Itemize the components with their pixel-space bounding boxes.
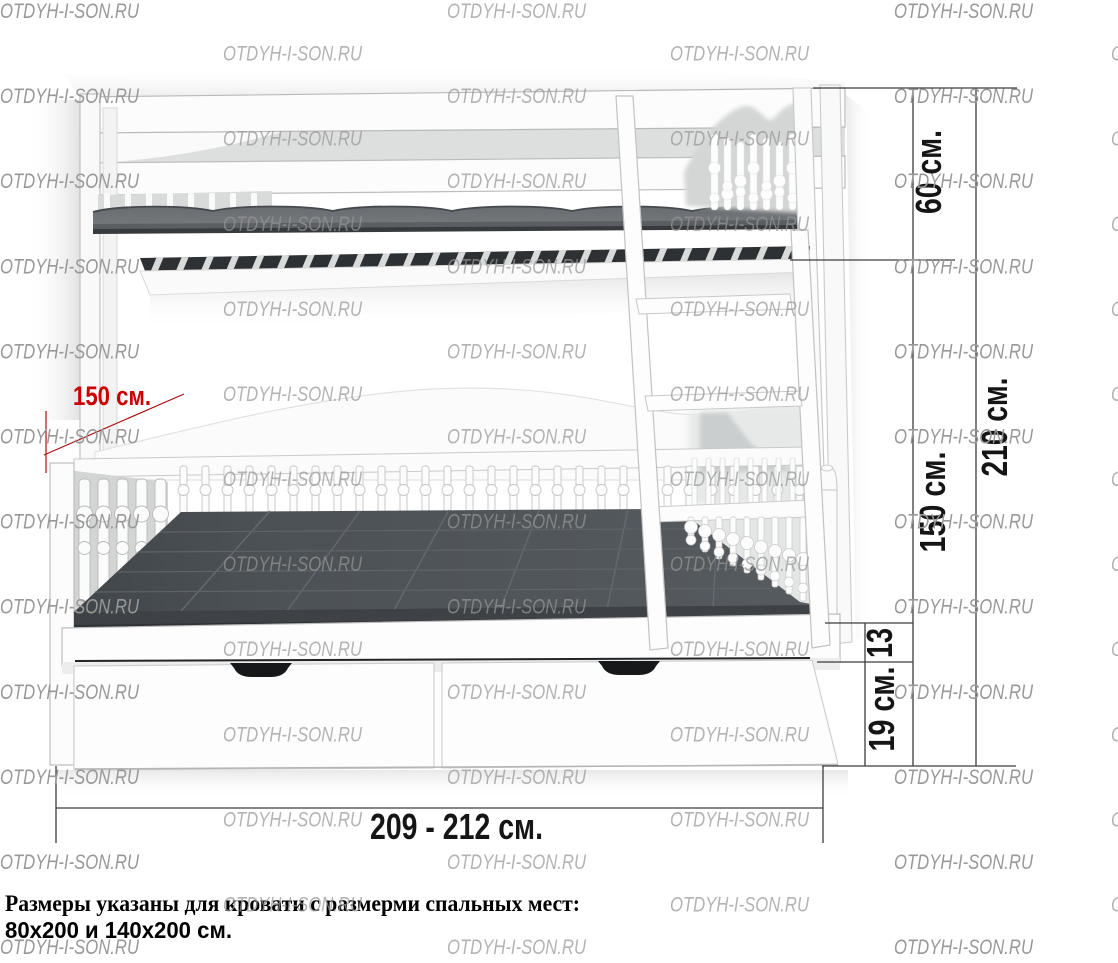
svg-text:OTDYH-I-SON.RU: OTDYH-I-SON.RU bbox=[670, 808, 810, 831]
svg-text:OTDYH-I-SON.RU: OTDYH-I-SON.RU bbox=[894, 511, 1034, 534]
svg-text:OTDYH-I-SON.RU: OTDYH-I-SON.RU bbox=[670, 383, 810, 406]
svg-text:OTDYH-I-SON.RU: OTDYH-I-SON.RU bbox=[223, 43, 363, 66]
svg-text:OTDYH-I-SON.RU: OTDYH-I-SON.RU bbox=[0, 851, 140, 874]
svg-text:OTDYH-I-SON.RU: OTDYH-I-SON.RU bbox=[894, 426, 1034, 449]
svg-text:OTDYH-I-SON.RU: OTDYH-I-SON.RU bbox=[223, 298, 363, 321]
svg-text:OTDYH-I-SON.RU: OTDYH-I-SON.RU bbox=[670, 894, 810, 917]
svg-text:OTDYH-I-SON.RU: OTDYH-I-SON.RU bbox=[1111, 894, 1118, 917]
svg-text:OTDYH-I-SON.RU: OTDYH-I-SON.RU bbox=[894, 851, 1034, 874]
svg-text:OTDYH-I-SON.RU: OTDYH-I-SON.RU bbox=[0, 596, 140, 619]
svg-text:OTDYH-I-SON.RU: OTDYH-I-SON.RU bbox=[1111, 638, 1118, 661]
svg-text:OTDYH-I-SON.RU: OTDYH-I-SON.RU bbox=[447, 170, 587, 193]
svg-text:OTDYH-I-SON.RU: OTDYH-I-SON.RU bbox=[0, 85, 140, 108]
svg-text:OTDYH-I-SON.RU: OTDYH-I-SON.RU bbox=[1111, 383, 1118, 406]
svg-text:OTDYH-I-SON.RU: OTDYH-I-SON.RU bbox=[447, 851, 587, 874]
svg-text:OTDYH-I-SON.RU: OTDYH-I-SON.RU bbox=[1111, 468, 1118, 491]
svg-text:OTDYH-I-SON.RU: OTDYH-I-SON.RU bbox=[1111, 298, 1118, 321]
svg-text:OTDYH-I-SON.RU: OTDYH-I-SON.RU bbox=[894, 85, 1034, 108]
svg-text:209 - 212 см.: 209 - 212 см. bbox=[370, 806, 543, 847]
svg-text:OTDYH-I-SON.RU: OTDYH-I-SON.RU bbox=[670, 213, 810, 236]
svg-text:OTDYH-I-SON.RU: OTDYH-I-SON.RU bbox=[447, 766, 587, 789]
svg-text:OTDYH-I-SON.RU: OTDYH-I-SON.RU bbox=[670, 298, 810, 321]
svg-text:OTDYH-I-SON.RU: OTDYH-I-SON.RU bbox=[670, 468, 810, 491]
svg-text:OTDYH-I-SON.RU: OTDYH-I-SON.RU bbox=[0, 936, 140, 959]
svg-text:OTDYH-I-SON.RU: OTDYH-I-SON.RU bbox=[0, 340, 140, 363]
svg-text:OTDYH-I-SON.RU: OTDYH-I-SON.RU bbox=[447, 596, 587, 619]
svg-text:OTDYH-I-SON.RU: OTDYH-I-SON.RU bbox=[670, 43, 810, 66]
svg-text:OTDYH-I-SON.RU: OTDYH-I-SON.RU bbox=[894, 340, 1034, 363]
svg-text:OTDYH-I-SON.RU: OTDYH-I-SON.RU bbox=[894, 170, 1034, 193]
svg-text:150 см.: 150 см. bbox=[912, 452, 953, 553]
svg-text:OTDYH-I-SON.RU: OTDYH-I-SON.RU bbox=[223, 553, 363, 576]
svg-text:OTDYH-I-SON.RU: OTDYH-I-SON.RU bbox=[1111, 723, 1118, 746]
svg-text:OTDYH-I-SON.RU: OTDYH-I-SON.RU bbox=[447, 85, 587, 108]
svg-text:OTDYH-I-SON.RU: OTDYH-I-SON.RU bbox=[447, 426, 587, 449]
svg-text:OTDYH-I-SON.RU: OTDYH-I-SON.RU bbox=[670, 553, 810, 576]
svg-text:OTDYH-I-SON.RU: OTDYH-I-SON.RU bbox=[0, 511, 140, 534]
svg-text:OTDYH-I-SON.RU: OTDYH-I-SON.RU bbox=[0, 255, 140, 278]
svg-text:OTDYH-I-SON.RU: OTDYH-I-SON.RU bbox=[1111, 128, 1118, 151]
svg-text:OTDYH-I-SON.RU: OTDYH-I-SON.RU bbox=[670, 723, 810, 746]
svg-text:OTDYH-I-SON.RU: OTDYH-I-SON.RU bbox=[0, 170, 140, 193]
svg-text:OTDYH-I-SON.RU: OTDYH-I-SON.RU bbox=[0, 766, 140, 789]
svg-text:OTDYH-I-SON.RU: OTDYH-I-SON.RU bbox=[894, 596, 1034, 619]
svg-text:OTDYH-I-SON.RU: OTDYH-I-SON.RU bbox=[223, 638, 363, 661]
svg-text:OTDYH-I-SON.RU: OTDYH-I-SON.RU bbox=[447, 681, 587, 704]
svg-text:OTDYH-I-SON.RU: OTDYH-I-SON.RU bbox=[0, 681, 140, 704]
svg-text:OTDYH-I-SON.RU: OTDYH-I-SON.RU bbox=[670, 638, 810, 661]
svg-text:150 см.: 150 см. bbox=[73, 381, 151, 411]
svg-text:OTDYH-I-SON.RU: OTDYH-I-SON.RU bbox=[894, 255, 1034, 278]
svg-text:19 см.: 19 см. bbox=[861, 667, 902, 752]
svg-text:OTDYH-I-SON.RU: OTDYH-I-SON.RU bbox=[894, 936, 1034, 959]
svg-text:OTDYH-I-SON.RU: OTDYH-I-SON.RU bbox=[1111, 808, 1118, 831]
svg-text:OTDYH-I-SON.RU: OTDYH-I-SON.RU bbox=[447, 255, 587, 278]
svg-text:OTDYH-I-SON.RU: OTDYH-I-SON.RU bbox=[894, 766, 1034, 789]
svg-text:OTDYH-I-SON.RU: OTDYH-I-SON.RU bbox=[0, 426, 140, 449]
svg-text:OTDYH-I-SON.RU: OTDYH-I-SON.RU bbox=[447, 511, 587, 534]
svg-text:OTDYH-I-SON.RU: OTDYH-I-SON.RU bbox=[1111, 213, 1118, 236]
svg-text:OTDYH-I-SON.RU: OTDYH-I-SON.RU bbox=[223, 723, 363, 746]
svg-text:OTDYH-I-SON.RU: OTDYH-I-SON.RU bbox=[223, 213, 363, 236]
svg-text:OTDYH-I-SON.RU: OTDYH-I-SON.RU bbox=[447, 0, 587, 23]
svg-text:OTDYH-I-SON.RU: OTDYH-I-SON.RU bbox=[447, 936, 587, 959]
svg-text:OTDYH-I-SON.RU: OTDYH-I-SON.RU bbox=[1111, 553, 1118, 576]
svg-text:OTDYH-I-SON.RU: OTDYH-I-SON.RU bbox=[223, 383, 363, 406]
svg-text:OTDYH-I-SON.RU: OTDYH-I-SON.RU bbox=[0, 0, 140, 23]
svg-text:13: 13 bbox=[859, 628, 900, 658]
svg-text:OTDYH-I-SON.RU: OTDYH-I-SON.RU bbox=[223, 808, 363, 831]
svg-text:OTDYH-I-SON.RU: OTDYH-I-SON.RU bbox=[1111, 43, 1118, 66]
svg-text:OTDYH-I-SON.RU: OTDYH-I-SON.RU bbox=[447, 340, 587, 363]
svg-text:OTDYH-I-SON.RU: OTDYH-I-SON.RU bbox=[223, 128, 363, 151]
svg-text:OTDYH-I-SON.RU: OTDYH-I-SON.RU bbox=[894, 0, 1034, 23]
svg-text:OTDYH-I-SON.RU: OTDYH-I-SON.RU bbox=[223, 468, 363, 491]
svg-text:OTDYH-I-SON.RU: OTDYH-I-SON.RU bbox=[670, 128, 810, 151]
svg-text:OTDYH-I-SON.RU: OTDYH-I-SON.RU bbox=[223, 894, 363, 917]
svg-text:OTDYH-I-SON.RU: OTDYH-I-SON.RU bbox=[894, 681, 1034, 704]
